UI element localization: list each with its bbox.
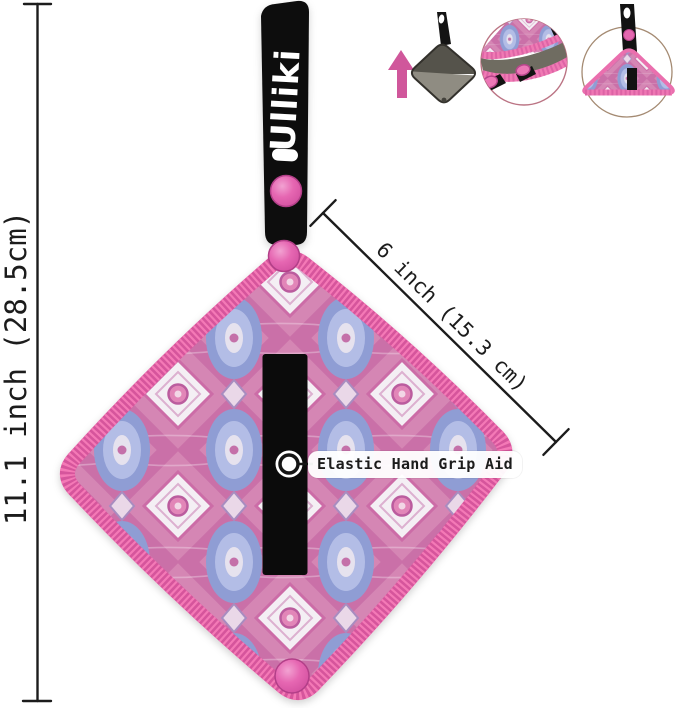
height-dimension-label: 11.1 inch (28.5cm) <box>0 211 33 525</box>
snap-button-top <box>269 241 300 272</box>
thumbnail-folded-triangle <box>582 4 673 117</box>
product-dimension-image: Ulliki 11.1 inch (28.5cm) 6 inch (15.3 c… <box>0 0 679 708</box>
usage-thumbnails <box>388 4 673 117</box>
up-arrow-icon <box>388 50 414 98</box>
brand-logo: Ulliki <box>263 48 308 153</box>
product-photo-scene <box>0 0 679 708</box>
snap-button-strap <box>271 176 302 207</box>
grip-callout-label: Elastic Hand Grip Aid <box>308 451 522 478</box>
thumbnail-back-side <box>388 12 485 110</box>
snap-button-bottom <box>275 659 309 693</box>
thumb1-gray-diamond <box>405 38 485 110</box>
thumbnail-fold-detail <box>470 12 572 105</box>
